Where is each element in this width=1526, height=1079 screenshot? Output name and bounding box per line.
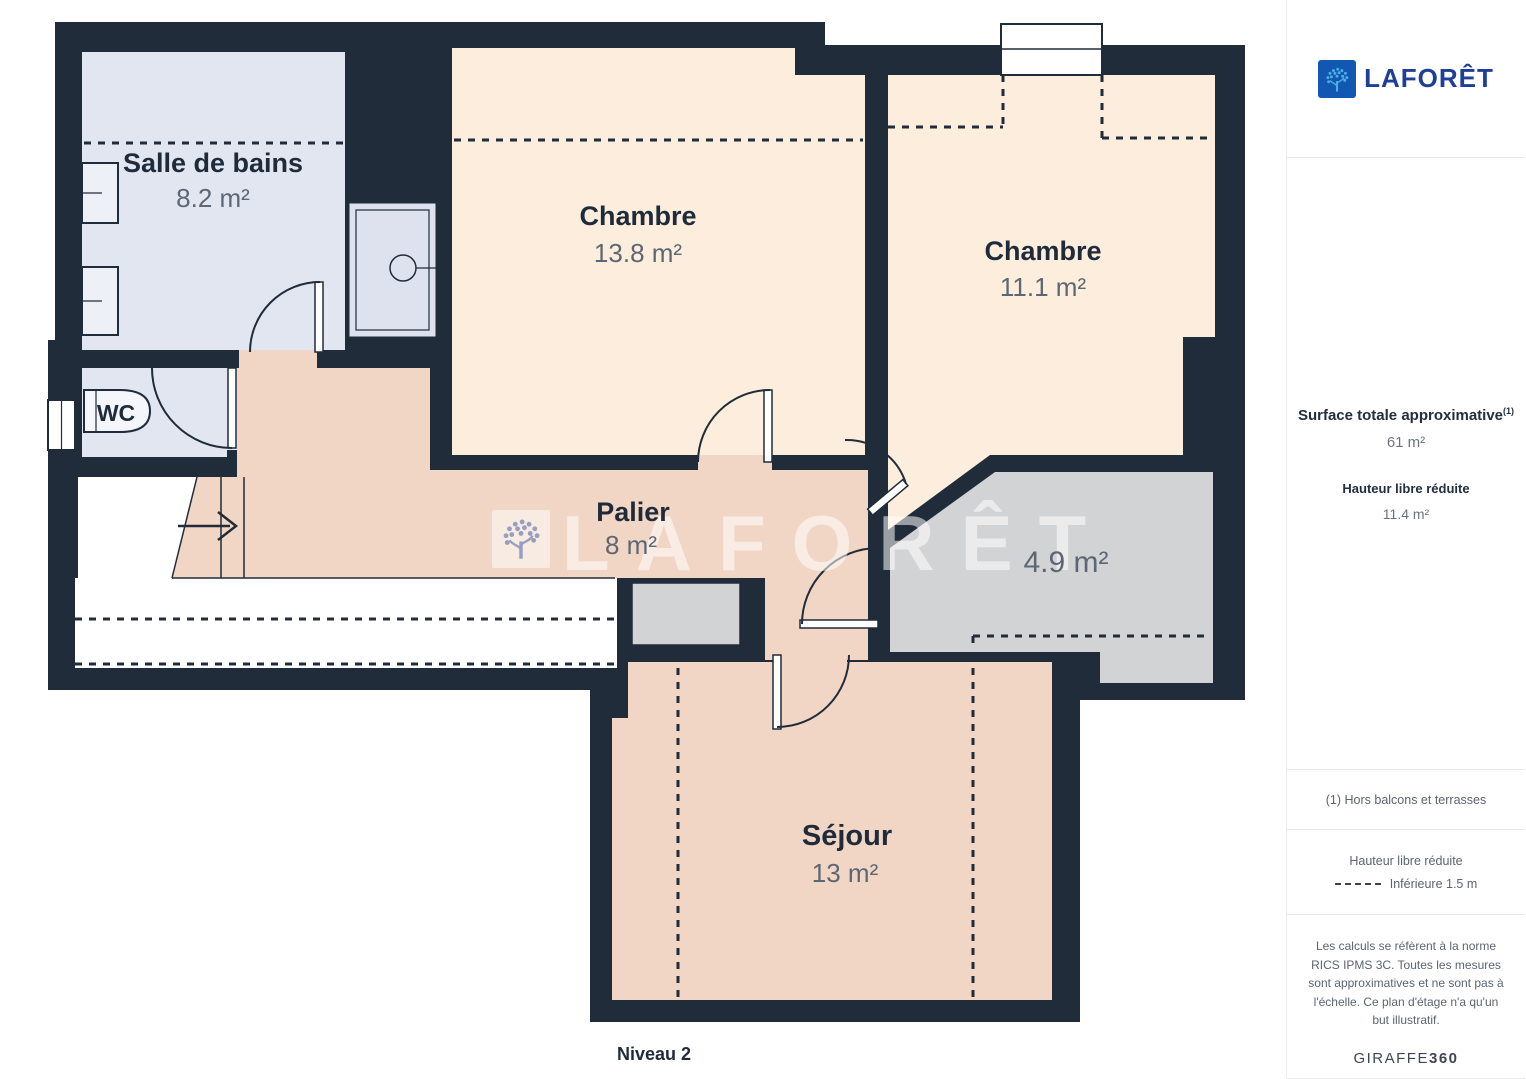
window-dormer — [1001, 24, 1102, 75]
brand-wordmark: LAFORÊT — [1364, 63, 1494, 94]
area-reduced-height: 4.9 m² — [1023, 546, 1108, 579]
reduced-height-title: Hauteur libre réduite — [1342, 481, 1469, 496]
shower — [348, 202, 437, 338]
area-sejour: 13 m² — [812, 858, 879, 888]
watermark: LAFORÊT — [492, 499, 1112, 587]
void-band — [75, 578, 617, 668]
bathroom-door-opening — [239, 350, 317, 368]
floor-plan: LAFORÊT Salle de bains 8.2 m² Chambre 13… — [0, 0, 1286, 1079]
label-salle-de-bains: Salle de bains — [123, 148, 303, 178]
sejour-door-leaf — [773, 655, 781, 729]
legend: Hauteur libre réduite Inférieure 1.5 m — [1287, 830, 1525, 915]
window-left — [48, 400, 75, 450]
footnote: (1) Hors balcons et terrasses — [1287, 770, 1525, 830]
surface-total-value: 61 m² — [1387, 434, 1425, 451]
reduced-height-value: 11.4 m² — [1383, 506, 1429, 522]
bathroom-door-leaf — [315, 282, 323, 352]
surface-footnote-marker: (1) — [1503, 406, 1514, 416]
giraffe360-credit: GIRAFFE360 — [1353, 1047, 1458, 1070]
info-sidebar: LAFORÊT Surface totale approximative(1) … — [1286, 0, 1525, 1079]
area-chambre-1: 13.8 m² — [594, 238, 682, 268]
area-salle-de-bains: 8.2 m² — [176, 183, 250, 213]
area-chambre-2: 11.1 m² — [1000, 272, 1087, 302]
laforet-tree-icon — [1318, 60, 1356, 98]
legend-title: Hauteur libre réduite — [1349, 854, 1462, 868]
dashed-line-icon — [1335, 883, 1381, 885]
label-chambre-1: Chambre — [579, 201, 696, 231]
label-sejour: Séjour — [802, 820, 892, 852]
surface-summary: Surface totale approximative(1) 61 m² Ha… — [1287, 158, 1525, 770]
legend-value: Inférieure 1.5 m — [1390, 877, 1478, 891]
area-palier: 8 m² — [605, 530, 657, 560]
disclaimer-text: Les calculs se réfèrent à la norme RICS … — [1308, 937, 1504, 1030]
level-label: Niveau 2 — [617, 1044, 691, 1064]
closet — [632, 583, 740, 645]
hall-door-leaf — [800, 620, 878, 628]
chambre1-door-leaf — [764, 390, 772, 462]
wc-door-leaf — [228, 368, 236, 448]
floorplan-page: LAFORÊT Salle de bains 8.2 m² Chambre 13… — [0, 0, 1526, 1079]
label-chambre-2: Chambre — [984, 236, 1101, 266]
label-palier: Palier — [596, 497, 670, 527]
chambre1-door-opening — [698, 455, 772, 470]
label-wc: WC — [97, 400, 135, 426]
brand-header: LAFORÊT — [1287, 0, 1525, 158]
disclaimer-section: Les calculs se réfèrent à la norme RICS … — [1287, 915, 1525, 1079]
footnote-text: (1) Hors balcons et terrasses — [1326, 793, 1486, 807]
surface-total-title: Surface totale approximative(1) — [1298, 406, 1514, 424]
sejour-door-opening — [775, 640, 847, 664]
